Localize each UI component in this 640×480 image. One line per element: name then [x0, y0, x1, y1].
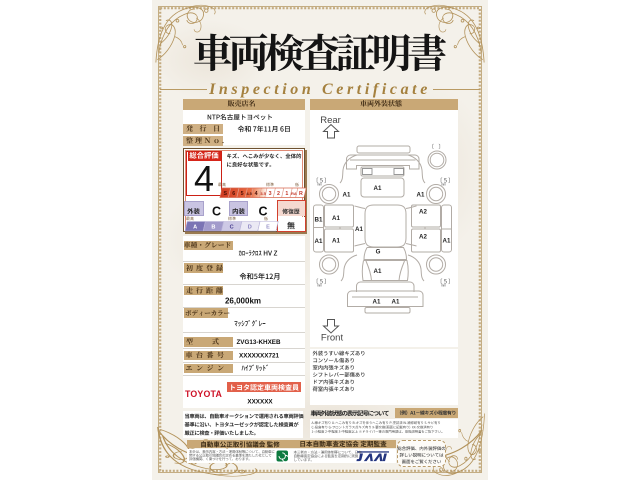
svg-text:R: R — [299, 191, 303, 197]
svg-text:mm: mm — [441, 284, 447, 288]
svg-text:TOYOTA: TOYOTA — [185, 389, 222, 399]
svg-text:A1: A1 — [315, 238, 323, 245]
svg-text:5: 5 — [241, 191, 244, 197]
svg-text:4: 4 — [255, 191, 258, 197]
svg-text:6: 6 — [232, 191, 235, 197]
svg-text:3.5: 3.5 — [260, 191, 266, 196]
svg-text:3: 3 — [269, 191, 272, 197]
svg-text:G: G — [376, 249, 381, 256]
svg-text:D: D — [248, 224, 252, 230]
svg-text:XXXXXX: XXXXXX — [247, 399, 273, 406]
svg-text:B: B — [211, 224, 215, 230]
svg-text:4: 4 — [194, 158, 214, 199]
svg-text:A1: A1 — [373, 299, 381, 306]
svg-text:A1: A1 — [374, 185, 382, 192]
svg-text:mm: mm — [441, 183, 447, 187]
svg-text:Inspection Certificate: Inspection Certificate — [208, 81, 431, 98]
svg-text:26,000km: 26,000km — [225, 297, 261, 306]
svg-text:Rear: Rear — [320, 115, 341, 126]
svg-text:2: 2 — [277, 191, 280, 197]
svg-text:C: C — [258, 205, 267, 219]
svg-text:mm: mm — [317, 183, 323, 187]
svg-text:A1: A1 — [332, 215, 340, 222]
svg-text:A1: A1 — [443, 238, 451, 245]
svg-text:C: C — [212, 205, 221, 219]
svg-text:4.5: 4.5 — [246, 191, 252, 196]
svg-text:A1: A1 — [355, 226, 363, 233]
svg-text:A2: A2 — [419, 234, 427, 241]
svg-text:C: C — [230, 224, 234, 230]
svg-text:A1: A1 — [417, 192, 425, 199]
svg-text:E: E — [266, 224, 270, 230]
svg-text:B1: B1 — [315, 217, 323, 224]
svg-text:mm: mm — [317, 284, 323, 288]
svg-text:A1: A1 — [343, 192, 351, 199]
svg-text:1: 1 — [285, 191, 288, 197]
svg-text:A: A — [193, 224, 197, 230]
svg-text:A2: A2 — [419, 209, 427, 216]
svg-text:ZVG13-KHXEB: ZVG13-KHXEB — [236, 339, 281, 346]
svg-text:Front: Front — [321, 333, 344, 344]
svg-text:A1: A1 — [374, 268, 382, 275]
svg-text:RA: RA — [291, 191, 297, 196]
svg-text:XXXXXXX721: XXXXXXX721 — [239, 353, 279, 360]
svg-text:S: S — [224, 191, 228, 197]
svg-text:A1: A1 — [332, 238, 340, 245]
svg-text:A1: A1 — [392, 299, 400, 306]
